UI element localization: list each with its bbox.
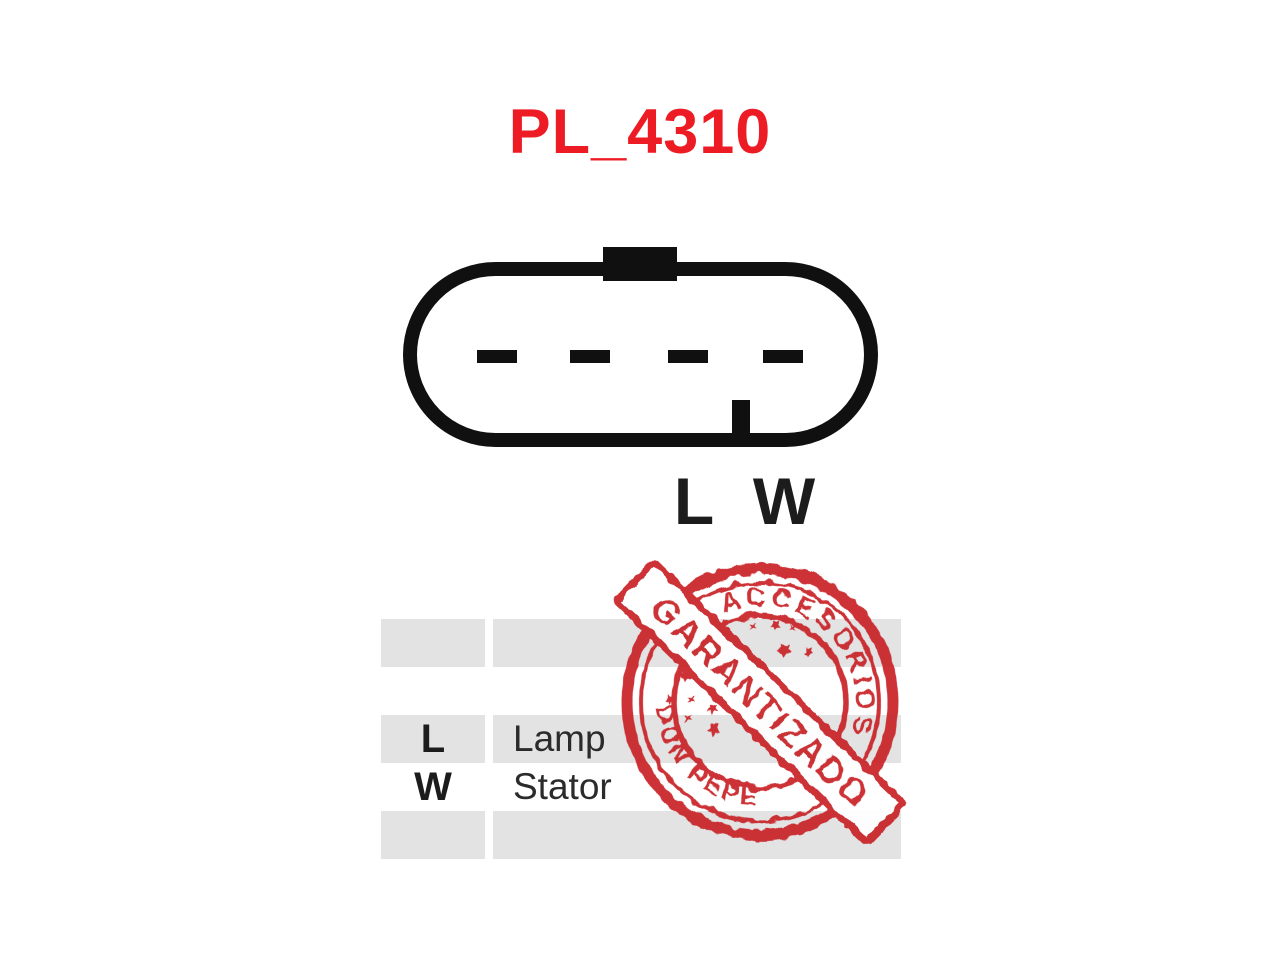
page: PL_4310 L W L Lamp W Stator <box>0 0 1280 960</box>
pin-dash-1 <box>477 350 517 363</box>
connector-bottom-notch <box>732 400 750 436</box>
pin-dash-4 <box>763 350 803 363</box>
pin-dash-3 <box>668 350 708 363</box>
pin-cell <box>381 619 485 667</box>
pin-label-l: L <box>674 468 714 534</box>
guarantee-stamp-icon: ACCESORIOS DON PEPE <box>614 556 906 848</box>
pin-dash-2 <box>570 350 610 363</box>
pin-cell <box>381 811 485 859</box>
pin-cell: W <box>381 763 485 811</box>
connector-top-tab <box>603 247 677 281</box>
pin-label-w: W <box>753 468 815 534</box>
connector-diagram <box>403 262 878 447</box>
pin-cell <box>381 667 485 715</box>
part-number-title: PL_4310 <box>0 98 1280 167</box>
stamp-banner-text: GARANTIZADO <box>642 587 878 817</box>
pin-cell: L <box>381 715 485 763</box>
